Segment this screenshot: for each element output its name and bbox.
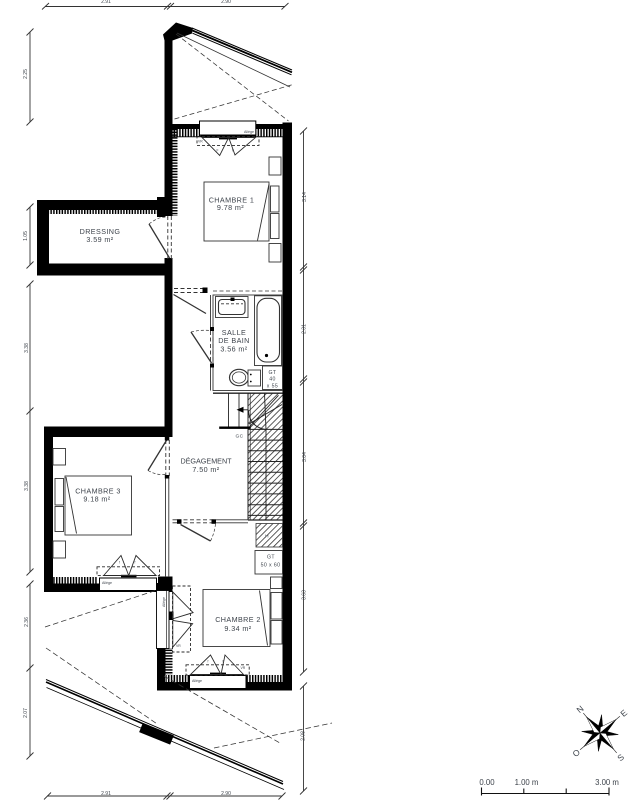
svg-text:2.25: 2.25 [23, 69, 29, 79]
svg-text:Allège: Allège [102, 581, 112, 585]
svg-text:VR: VR [198, 139, 203, 143]
svg-text:3.56 m²: 3.56 m² [220, 345, 247, 354]
svg-text:2.90: 2.90 [221, 791, 231, 797]
svg-text:3.38: 3.38 [24, 343, 30, 353]
svg-text:Allège: Allège [162, 597, 166, 607]
svg-text:3.38: 3.38 [24, 481, 30, 491]
svg-text:3.63: 3.63 [302, 590, 308, 600]
svg-text:9.18 m²: 9.18 m² [83, 495, 110, 504]
svg-text:2.08: 2.08 [301, 731, 307, 741]
svg-text:9.34 m²: 9.34 m² [224, 624, 251, 633]
svg-text:VR: VR [176, 644, 181, 648]
svg-text:f: f [223, 660, 224, 664]
svg-text:GT: GT [268, 370, 276, 376]
svg-text:50 x 60: 50 x 60 [261, 563, 281, 569]
svg-text:2.90: 2.90 [221, 0, 231, 5]
svg-text:3.00 m: 3.00 m [595, 778, 619, 787]
svg-text:f: f [135, 561, 136, 565]
svg-text:0.00: 0.00 [479, 778, 495, 787]
svg-text:F: F [232, 149, 234, 153]
svg-text:2.91: 2.91 [101, 0, 111, 5]
svg-text:2.07: 2.07 [23, 708, 29, 718]
svg-text:9.78 m²: 9.78 m² [217, 203, 244, 212]
svg-text:1.00 m: 1.00 m [515, 778, 539, 787]
svg-text:f: f [119, 561, 120, 565]
svg-text:3.14: 3.14 [302, 192, 308, 202]
svg-text:H: H [265, 534, 269, 540]
svg-text:2.91: 2.91 [101, 791, 111, 797]
svg-text:7.50 m²: 7.50 m² [192, 465, 219, 474]
svg-text:1.05: 1.05 [23, 231, 29, 241]
svg-text:x 55: x 55 [267, 384, 278, 390]
svg-text:VR: VR [241, 666, 246, 670]
svg-text:Allège: Allège [192, 679, 202, 683]
svg-text:3.04: 3.04 [302, 452, 308, 462]
svg-text:GT: GT [267, 555, 275, 561]
svg-text:GC: GC [236, 434, 244, 440]
svg-text:CHAMBRE 2: CHAMBRE 2 [215, 615, 261, 624]
svg-text:3.59 m²: 3.59 m² [86, 235, 113, 244]
svg-text:2.36: 2.36 [24, 617, 30, 627]
svg-text:f: f [208, 660, 209, 664]
svg-text:2.31: 2.31 [302, 324, 308, 334]
svg-text:Allège: Allège [244, 130, 254, 134]
svg-text:40: 40 [269, 377, 276, 383]
svg-text:F: F [217, 149, 219, 153]
